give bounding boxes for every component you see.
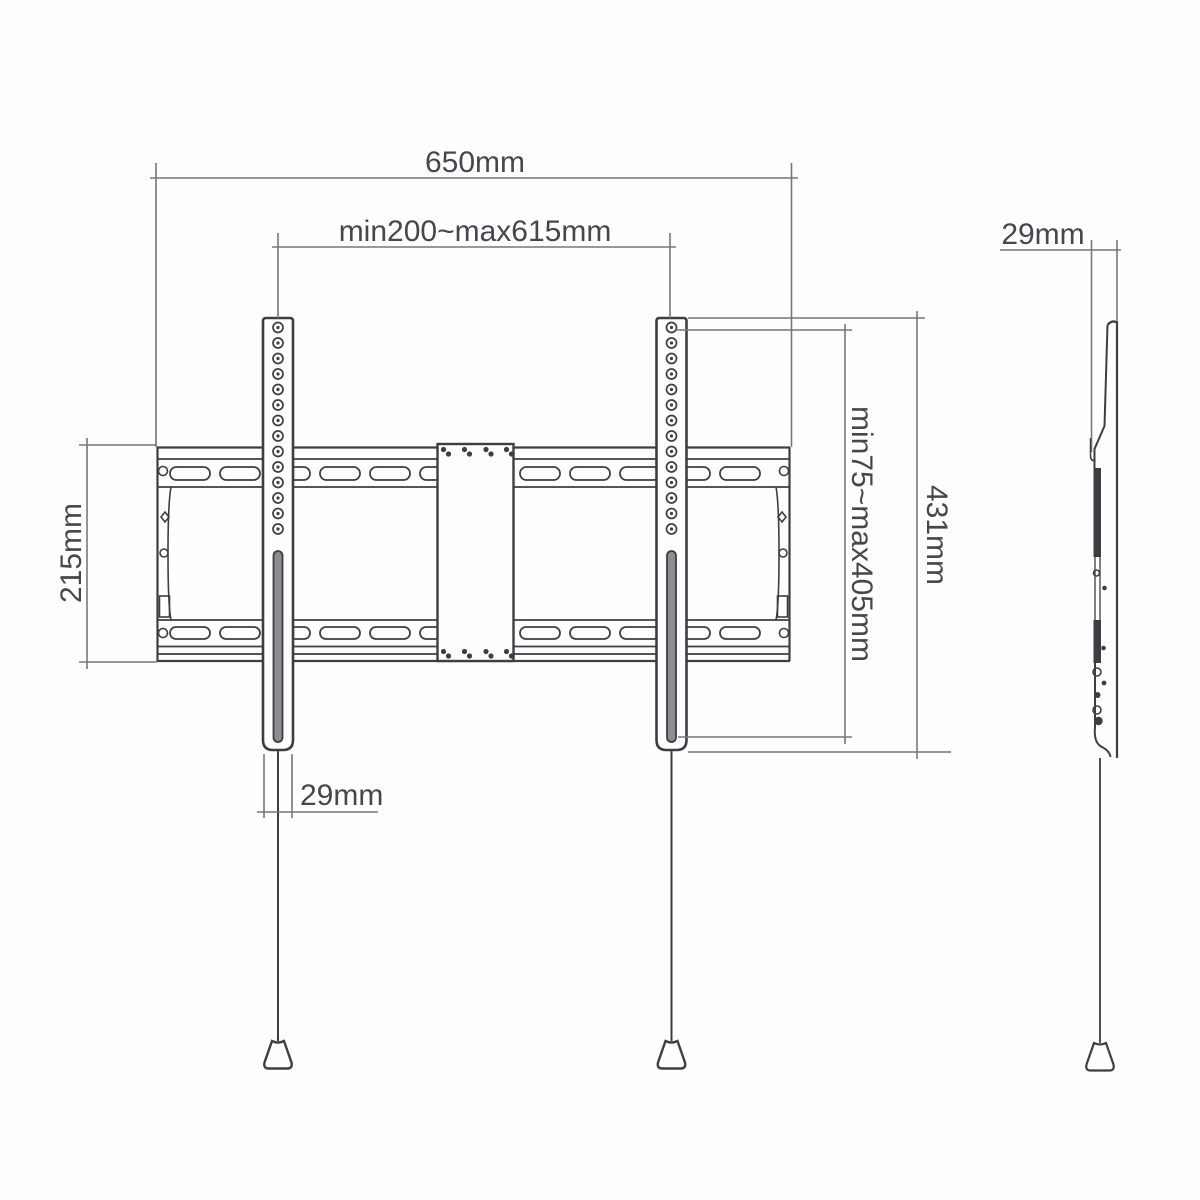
rail-spacing-label: min200~max615mm (339, 215, 612, 248)
plate-right-end-cap (776, 467, 789, 638)
dimension-rail-height: 431mm (688, 311, 953, 759)
mount-side-profile (1091, 321, 1118, 758)
side-view: 29mm (1000, 218, 1121, 1071)
rail-section-upper (1094, 468, 1102, 557)
tv-wall-mount-drawing: 650mm min200~max615mm 215mm 29mm (0, 0, 1200, 1200)
mount-range-label: min75~max405mm (845, 406, 878, 662)
side-cord-pull-tab (1086, 1043, 1113, 1071)
plate-height-label: 215mm (55, 503, 88, 603)
plate-left-end-cap (159, 467, 172, 638)
left-pull-cord (264, 750, 291, 1069)
dimension-plate-height: 215mm (55, 438, 157, 669)
right-pull-cord (658, 750, 685, 1069)
left-cord-pull-tab (264, 1041, 291, 1069)
depth-label: 29mm (1001, 218, 1084, 251)
technical-drawing-canvas: 650mm min200~max615mm 215mm 29mm (0, 0, 1200, 1200)
dimension-depth: 29mm (1000, 218, 1121, 452)
total-width-label: 650mm (425, 146, 525, 179)
dimension-mount-range: min75~max405mm (676, 324, 878, 744)
center-vesa-plate (438, 444, 515, 661)
dimension-total-width: 650mm (150, 146, 798, 447)
rail-height-label: 431mm (920, 485, 953, 585)
rail-width-label: 29mm (300, 779, 383, 812)
front-view: 650mm min200~max615mm 215mm 29mm (55, 146, 953, 1069)
left-tv-rail (263, 318, 293, 750)
side-pull-cord (1086, 758, 1113, 1071)
right-cord-pull-tab (658, 1041, 685, 1069)
dimension-rail-spacing: min200~max615mm (272, 215, 676, 318)
right-tv-rail (657, 318, 687, 750)
dimension-rail-width: 29mm (257, 754, 383, 818)
rail-section-lower (1094, 620, 1102, 663)
